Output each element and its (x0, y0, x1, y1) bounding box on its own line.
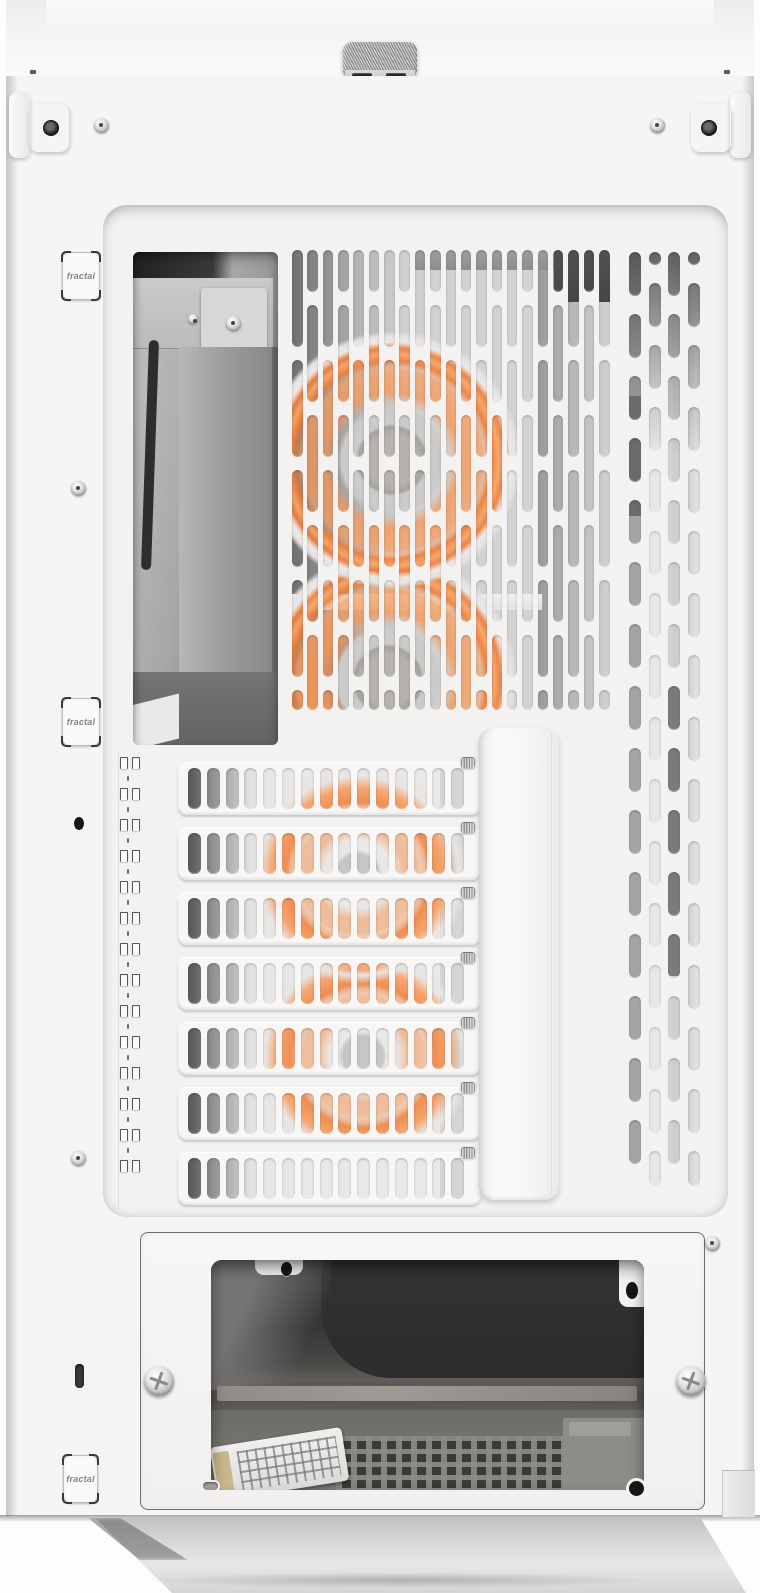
hinge-badge-top: fractal (62, 252, 100, 300)
slot-cover-vent-hole (226, 1093, 239, 1134)
clip-tick (127, 993, 129, 998)
vent-slot (323, 250, 334, 347)
slot-cover-vent-hole (263, 833, 276, 874)
vent-slot (688, 779, 700, 823)
badge-corner-icon (61, 290, 71, 301)
slot-cover-vent-hole (432, 963, 445, 1004)
vent-slot (353, 580, 364, 677)
vent-slot (369, 305, 380, 402)
badge-corner-icon (89, 1454, 99, 1465)
slot-cover-vent-hole (376, 1028, 389, 1069)
vent-slot (688, 593, 700, 637)
vent-slot (668, 438, 680, 482)
slot-clip (120, 1160, 142, 1173)
clip-tick (127, 900, 129, 905)
slot-cover-vent-hole (263, 898, 276, 939)
expansion-slot-cover (178, 762, 481, 815)
slot-cover-vent-hole (226, 898, 239, 939)
vent-slot (430, 305, 441, 402)
vent-slot (307, 250, 318, 292)
slot-cover-vent-hole (414, 768, 427, 809)
slot-clip-hook (132, 819, 140, 831)
slot-cover-vent-hole (432, 1158, 445, 1199)
slot-cover-thumbscrew (461, 887, 475, 898)
slot-cover-vent-hole (263, 1158, 276, 1199)
top-panel-sheen (46, 0, 714, 40)
vent-slot (599, 360, 610, 457)
vent-slot (649, 469, 661, 513)
slot-clip-hook (120, 943, 128, 955)
vent-slot (688, 1089, 700, 1133)
slot-cover-vent-hole (207, 1158, 220, 1199)
vent-slot (476, 690, 487, 710)
vent-slot (629, 438, 641, 482)
vent-slot (415, 250, 426, 347)
vent-slot (649, 345, 661, 389)
slot-cover-vent-hole (432, 833, 445, 874)
vent-slot (492, 305, 503, 402)
slot-cover-vent-hole (432, 1028, 445, 1069)
slot-cover-vent-hole (207, 898, 220, 939)
slot-cover-vent-hole (414, 1028, 427, 1069)
vent-slot (649, 655, 661, 699)
slot-cover-vent-hole (263, 1093, 276, 1134)
slot-clip-hook (120, 788, 128, 800)
vent-slot (629, 1058, 641, 1102)
vent-slot (629, 934, 641, 978)
clip-tick (127, 1055, 129, 1060)
vent-slot (384, 690, 395, 710)
slot-cover-vent-hole (432, 768, 445, 809)
slot-cover-vent-hole (301, 963, 314, 1004)
slot-clip-hook (132, 974, 140, 986)
expansion-slot-cover (178, 957, 481, 1010)
vent-slot (415, 690, 426, 710)
hinge-badge-bottom: fractal (63, 1455, 98, 1503)
slot-cover-thumbscrew (461, 757, 475, 768)
vent-slot (446, 580, 457, 677)
vent-slot (649, 283, 661, 327)
vent-slot (629, 996, 641, 1040)
slot-cover-vent-hole (376, 768, 389, 809)
slot-cover-vent-hole (188, 1158, 201, 1199)
slot-cover-vent-hole (376, 833, 389, 874)
vent-slot (629, 872, 641, 916)
slot-cover-vent-hole (226, 963, 239, 1004)
vent-slot (553, 635, 564, 710)
screw-hole-left (74, 817, 84, 830)
vent-slot (668, 934, 680, 978)
psu-thumbscrew-left (144, 1366, 174, 1396)
seam-tick-left (30, 70, 36, 74)
vent-slot (688, 717, 700, 761)
slot-cover-vent-hole (395, 768, 408, 809)
hinge-badge-middle: fractal (62, 698, 100, 746)
vent-slot (688, 1027, 700, 1071)
vent-slot (629, 252, 641, 296)
vent-slot (384, 360, 395, 457)
vent-slot (584, 635, 595, 710)
vent-slot (292, 250, 303, 347)
psu-window-inner-shadow (211, 1260, 644, 1490)
dome-screw-plate-top-right (705, 1236, 720, 1251)
vent-slot (649, 252, 661, 265)
slot-cover-vent-hole (376, 1158, 389, 1199)
slot-cover-vent-hole (376, 898, 389, 939)
vent-slot (461, 635, 472, 710)
slot-clip-hook (132, 943, 140, 955)
slot-cover-vent-hole (338, 1028, 351, 1069)
vent-slot (292, 470, 303, 567)
badge-corner-icon (91, 290, 101, 301)
clip-tick (127, 1148, 129, 1153)
vent-slot (492, 415, 503, 512)
vent-slot (688, 965, 700, 1009)
badge-corner-icon (62, 1493, 72, 1504)
vent-slot (522, 635, 533, 710)
vent-slot (430, 250, 441, 292)
slot-cover-vent-hole (338, 963, 351, 1004)
cover-bar (479, 728, 559, 1200)
vent-slot (338, 415, 349, 512)
slot-cover-vent-hole (282, 1028, 295, 1069)
badge-corner-icon (62, 1454, 72, 1465)
slot-cover-vent-hole (451, 1028, 464, 1069)
slot-cover-vent-hole (320, 1093, 333, 1134)
vent-slot (568, 580, 579, 677)
slot-cover-vent-hole (338, 1158, 351, 1199)
body-right-corner-step (722, 1470, 755, 1517)
vent-slot (369, 525, 380, 622)
slot-cover-vent-hole (188, 833, 201, 874)
slot-cover-vent-hole (451, 833, 464, 874)
clip-tick (127, 776, 129, 781)
slot-clip-hook (120, 1129, 128, 1141)
vent-slot (338, 635, 349, 710)
slot-cover-vent-hole (357, 898, 370, 939)
slot-cover-vent-hole (414, 898, 427, 939)
slot-cover-vent-hole (282, 768, 295, 809)
slot-clip-hook (120, 974, 128, 986)
slot-clip (120, 912, 142, 925)
slot-cover-vent-hole (244, 1093, 257, 1134)
vent-slot (688, 1151, 700, 1186)
slot-cover-vent-hole (244, 898, 257, 939)
slot-cover-vent-hole (226, 768, 239, 809)
vent-slot (292, 580, 303, 677)
vent-slot (399, 415, 410, 512)
vent-slot (668, 1058, 680, 1102)
slot-clip-hook (132, 1160, 140, 1172)
slot-clip-hook (132, 881, 140, 893)
clip-tick (127, 807, 129, 812)
expansion-slot-cover (178, 1152, 481, 1205)
slot-clip-hook (120, 912, 128, 924)
dome-screw-top-left (94, 118, 109, 133)
vent-slot (399, 635, 410, 710)
slot-cover-vent-hole (263, 963, 276, 1004)
vent-slot (430, 525, 441, 622)
vent-slot (599, 250, 610, 347)
vent-slot (461, 415, 472, 512)
slot-clip (120, 1005, 142, 1018)
slot-clip (120, 1036, 142, 1049)
slot-cover-vent-hole (207, 963, 220, 1004)
slot-cover-vent-hole (414, 833, 427, 874)
vent-slot (292, 360, 303, 457)
slot-clip-hook (132, 1098, 140, 1110)
slot-cover-vent-hole (357, 768, 370, 809)
vent-slot (599, 690, 610, 710)
slot-cover-thumbscrew (461, 1082, 475, 1093)
vent-slot (323, 470, 334, 567)
vent-slot (649, 965, 661, 1009)
dome-screw-left-lower (71, 1151, 86, 1166)
slot-cover-vent-hole (338, 833, 351, 874)
slot-cover-vent-hole (282, 898, 295, 939)
vent-slot (668, 810, 680, 854)
slot-clip-hook (132, 1036, 140, 1048)
vent-slot (668, 1120, 680, 1164)
vent-slot (649, 717, 661, 761)
vent-slot (338, 525, 349, 622)
vent-slot (307, 525, 318, 622)
vent-slot (538, 360, 549, 457)
slot-cover-vent-hole (320, 768, 333, 809)
slot-cover-vent-hole (432, 898, 445, 939)
vent-slot (668, 748, 680, 792)
slot-cover-vent-hole (395, 1028, 408, 1069)
vent-slot (476, 470, 487, 567)
vent-slot (584, 415, 595, 512)
slot-clip-hook (120, 850, 128, 862)
vent-slot (668, 996, 680, 1040)
kensington-lock-slot (75, 1364, 84, 1388)
clip-tick (127, 838, 129, 843)
vent-slot (461, 250, 472, 292)
slot-cover-vent-hole (320, 1158, 333, 1199)
psu-plate (140, 1232, 705, 1510)
vent-slot (415, 360, 426, 457)
vent-slot (384, 580, 395, 677)
slot-cover-vent-hole (301, 1028, 314, 1069)
vent-slot (649, 1151, 661, 1186)
slot-cover-vent-hole (244, 833, 257, 874)
vent-slot (507, 360, 518, 457)
vent-slot (688, 469, 700, 513)
vent-slot (649, 593, 661, 637)
badge-corner-icon (61, 736, 71, 747)
vent-slot (668, 500, 680, 544)
slot-cover-vent-hole (357, 1093, 370, 1134)
vent-slot (688, 841, 700, 885)
body-left-edge-shade (6, 76, 18, 1516)
badge-corner-icon (91, 251, 101, 262)
slot-cover-vent-hole (188, 1028, 201, 1069)
slot-cover-vent-hole (395, 898, 408, 939)
slot-clip (120, 788, 142, 801)
vent-slot (629, 748, 641, 792)
slot-cover-vent-hole (207, 833, 220, 874)
slot-cover-thumbscrew (461, 1147, 475, 1158)
slot-clip-hook (120, 1036, 128, 1048)
slot-cover-vent-hole (320, 963, 333, 1004)
vent-slot (538, 580, 549, 677)
vent-slot (446, 690, 457, 710)
slot-clip-hook (120, 1098, 128, 1110)
vent-slot (668, 562, 680, 606)
slot-clip-hook (120, 819, 128, 831)
slot-cover-vent-hole (338, 1093, 351, 1134)
slot-cover-vent-hole (338, 898, 351, 939)
slot-cover-vent-hole (338, 768, 351, 809)
vent-slot (649, 531, 661, 575)
vent-slot (688, 345, 700, 389)
vent-slot (292, 690, 303, 710)
vent-slot (649, 903, 661, 947)
slot-cover-thumbscrew (461, 1017, 475, 1028)
vent-slot (446, 360, 457, 457)
vent-slot (384, 250, 395, 347)
vent-slot (338, 250, 349, 292)
slot-clip (120, 1067, 142, 1080)
slot-cover-vent-hole (282, 833, 295, 874)
expansion-slot-cover (178, 892, 481, 945)
slot-cover-vent-hole (451, 1093, 464, 1134)
vent-slot (446, 250, 457, 347)
vent-slot (338, 305, 349, 402)
vent-slot (553, 415, 564, 512)
slot-clip-hook (132, 850, 140, 862)
vent-slot (369, 250, 380, 292)
vent-slot (568, 360, 579, 457)
slot-clip (120, 1098, 142, 1111)
vent-slot (476, 360, 487, 457)
slot-clip-hook (132, 1129, 140, 1141)
vent-slot (629, 686, 641, 730)
slot-clip (120, 881, 142, 894)
clip-rail-line (118, 752, 119, 1210)
slot-cover-vent-hole (395, 963, 408, 1004)
vent-slot (492, 525, 503, 622)
slot-clip (120, 850, 142, 863)
cover-bar-seam (551, 732, 552, 1194)
slot-cover-vent-hole (414, 1158, 427, 1199)
body-right-edge-shade (742, 76, 754, 1516)
vent-slot (649, 1089, 661, 1133)
slot-clip (120, 943, 142, 956)
vent-slot (649, 1027, 661, 1071)
slot-cover-vent-hole (301, 833, 314, 874)
panel-hook-left (9, 92, 30, 158)
vent-slot (688, 903, 700, 947)
vent-slot (688, 283, 700, 327)
vent-slot (688, 531, 700, 575)
slot-cover-vent-hole (395, 1158, 408, 1199)
slot-clip-hook (132, 1005, 140, 1017)
badge-corner-icon (91, 697, 101, 708)
clip-tick (127, 869, 129, 874)
slot-cover-vent-hole (357, 1028, 370, 1069)
vent-slot (307, 305, 318, 402)
dome-screw-left-upper (71, 481, 86, 496)
vent-slot (384, 470, 395, 567)
vent-slot (629, 376, 641, 420)
vent-slot (369, 635, 380, 710)
vent-slot (568, 690, 579, 710)
slot-cover-vent-hole (282, 1158, 295, 1199)
vent-slot (584, 525, 595, 622)
vent-slot (461, 525, 472, 622)
dome-screw-top-right (650, 118, 665, 133)
vent-slot (446, 470, 457, 567)
slot-cover-vent-hole (357, 833, 370, 874)
slot-cover-vent-hole (414, 1093, 427, 1134)
vent-slot (599, 470, 610, 567)
vent-slot (522, 415, 533, 512)
vent-slot (323, 690, 334, 710)
panel-hook-left-screw-hole (43, 120, 59, 136)
slot-clip-hook (132, 1067, 140, 1079)
vent-slot (568, 470, 579, 567)
psu-plate-slot-bottom-left (203, 1482, 218, 1490)
vent-slot (492, 250, 503, 292)
vent-slot (668, 686, 680, 730)
vent-slot (353, 360, 364, 457)
vent-slot (688, 407, 700, 451)
psu-window (211, 1260, 644, 1490)
slot-clip-hook (120, 1005, 128, 1017)
slot-cover-vent-hole (451, 768, 464, 809)
vent-slot (688, 655, 700, 699)
psu-thumbscrew-right (676, 1366, 706, 1396)
vent-slot (688, 252, 700, 265)
vent-slot (430, 635, 441, 710)
vent-slot (649, 779, 661, 823)
slot-cover-vent-hole (376, 1093, 389, 1134)
slot-cover-vent-hole (414, 963, 427, 1004)
slot-cover-vent-hole (263, 768, 276, 809)
vent-slot (353, 250, 364, 347)
slot-cover-vent-hole (301, 768, 314, 809)
slot-cover-vent-hole (188, 768, 201, 809)
slot-cover-vent-hole (207, 1093, 220, 1134)
vent-slot (599, 580, 610, 677)
slot-cover-vent-hole (188, 1093, 201, 1134)
panel-hook-right (730, 92, 751, 158)
slot-cover-vent-hole (188, 963, 201, 1004)
panel-hook-right-screw-hole (701, 120, 717, 136)
vent-slot (538, 690, 549, 710)
vent-slot (369, 415, 380, 512)
slot-clip-hook (132, 757, 140, 769)
slot-clip-hook (120, 757, 128, 769)
slot-clip-hook (120, 1067, 128, 1079)
vent-slot (522, 250, 533, 292)
seam-tick-right (724, 70, 730, 74)
vent-slot (507, 250, 518, 347)
slot-clip-hook (120, 1160, 128, 1172)
vent-slot (476, 580, 487, 677)
slot-cover-vent-hole (188, 898, 201, 939)
vent-slot (629, 1120, 641, 1164)
slot-clip (120, 974, 142, 987)
io-inner-shadow (133, 252, 278, 745)
clip-tick (127, 962, 129, 967)
slot-cover-vent-hole (357, 963, 370, 1004)
slot-cover-thumbscrew (461, 952, 475, 963)
slot-cover-vent-hole (395, 833, 408, 874)
